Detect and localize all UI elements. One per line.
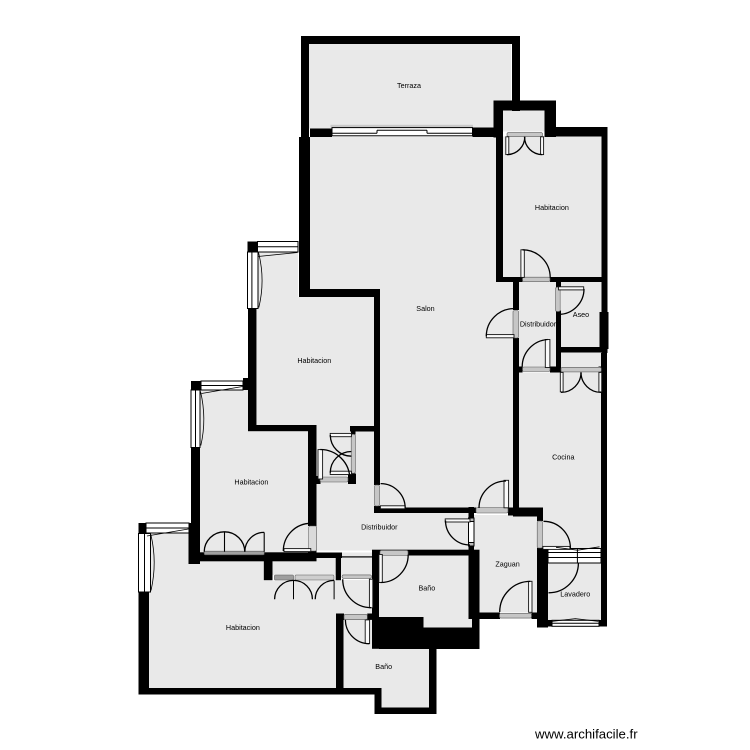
svg-text:Distribuidor: Distribuidor	[520, 320, 557, 329]
svg-text:Salon: Salon	[416, 304, 434, 313]
svg-text:Distribuidor: Distribuidor	[361, 523, 398, 532]
svg-text:Lavadero: Lavadero	[560, 590, 590, 599]
svg-text:Habitacion: Habitacion	[226, 623, 260, 632]
svg-text:Aseo: Aseo	[573, 310, 589, 319]
svg-text:Baño: Baño	[375, 662, 392, 671]
svg-text:Habitacion: Habitacion	[297, 356, 331, 365]
svg-text:Zaguan: Zaguan	[495, 559, 519, 568]
svg-text:Cocina: Cocina	[552, 453, 574, 462]
svg-text:Terraza: Terraza	[397, 81, 421, 90]
svg-text:www.archifacile.fr: www.archifacile.fr	[534, 727, 638, 742]
svg-text:Habitacion: Habitacion	[234, 477, 268, 486]
svg-text:Baño: Baño	[419, 584, 436, 593]
svg-text:Habitacion: Habitacion	[535, 203, 569, 212]
